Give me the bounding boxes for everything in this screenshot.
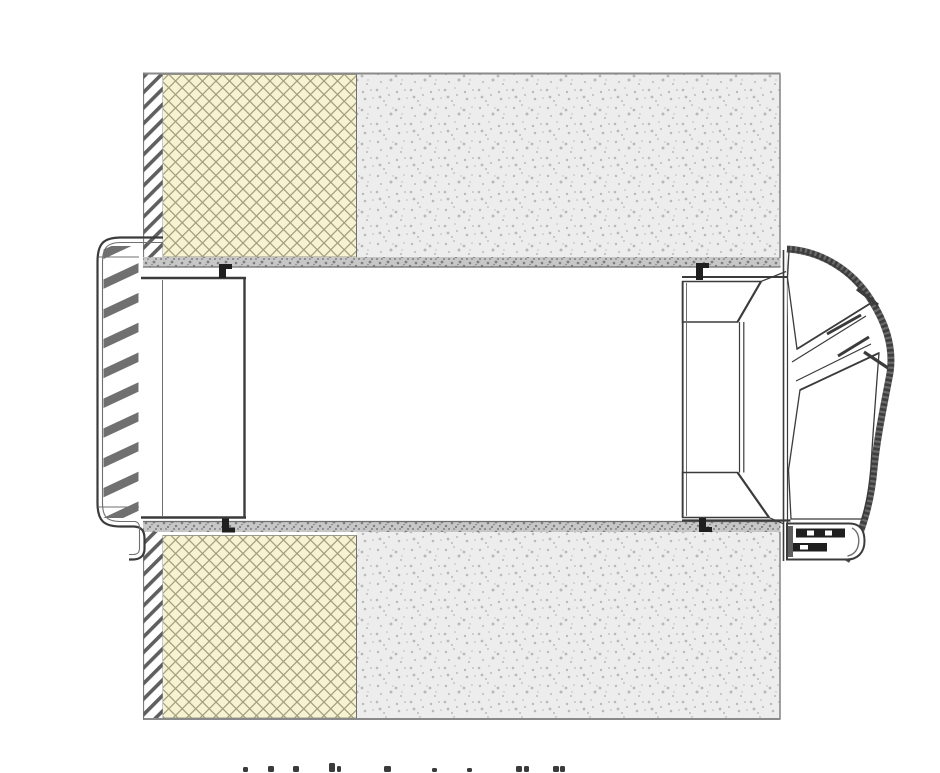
- block-top-chamfer: [738, 282, 762, 323]
- caption-letter-fragment: [467, 768, 472, 772]
- caption-letter-fragment: [243, 767, 248, 772]
- bottom-wall: [143, 522, 781, 720]
- concrete-fill: [357, 532, 781, 718]
- cropped-caption-text: [243, 763, 565, 772]
- concrete-fill: [357, 74, 781, 257]
- profile-stripe-hatch: [104, 246, 139, 518]
- door-frame-section-drawing: [0, 0, 940, 773]
- honeycomb-block-bottom: [683, 473, 770, 518]
- caption-letter-fragment: [516, 766, 522, 772]
- caption-letter-fragment: [329, 763, 335, 772]
- caption-letter-fragment: [553, 766, 559, 772]
- wall-hatch-strip: [143, 73, 163, 257]
- hinge-bar-upper: [796, 529, 845, 538]
- wall-hatch-strip: [143, 532, 163, 719]
- hinge-bar-upper-notch-b: [825, 531, 832, 536]
- insulation-crosshatch: [163, 75, 357, 258]
- hinge-bar-upper-notch-a: [807, 531, 814, 536]
- plaster-face-band: [143, 522, 781, 532]
- insulation-crosshatch: [163, 536, 357, 719]
- caption-letter-fragment: [293, 766, 299, 772]
- hinge-bar-lower-notch: [800, 545, 808, 550]
- block-bottom-chamfer: [738, 473, 770, 518]
- seal-tick-top: [219, 264, 232, 278]
- hinge-bar-lower: [792, 543, 827, 552]
- technical-drawing-page: [0, 0, 940, 773]
- caption-letter-fragment: [560, 766, 565, 772]
- left-door-rebate: [141, 264, 246, 533]
- caption-letter-fragment: [432, 768, 437, 772]
- open-door-leaf-curved: [787, 249, 891, 561]
- caption-letter-fragment: [268, 766, 274, 772]
- caption-letter-fragment: [384, 766, 391, 772]
- hinge-detail: [787, 524, 865, 560]
- caption-letter-fragment: [524, 766, 529, 772]
- caption-letter-fragment: [337, 766, 341, 772]
- left-frame-profile: [98, 238, 164, 560]
- top-wall: [143, 73, 781, 267]
- hinge-pivot-block: [788, 526, 793, 557]
- plaster-face-band: [143, 257, 781, 267]
